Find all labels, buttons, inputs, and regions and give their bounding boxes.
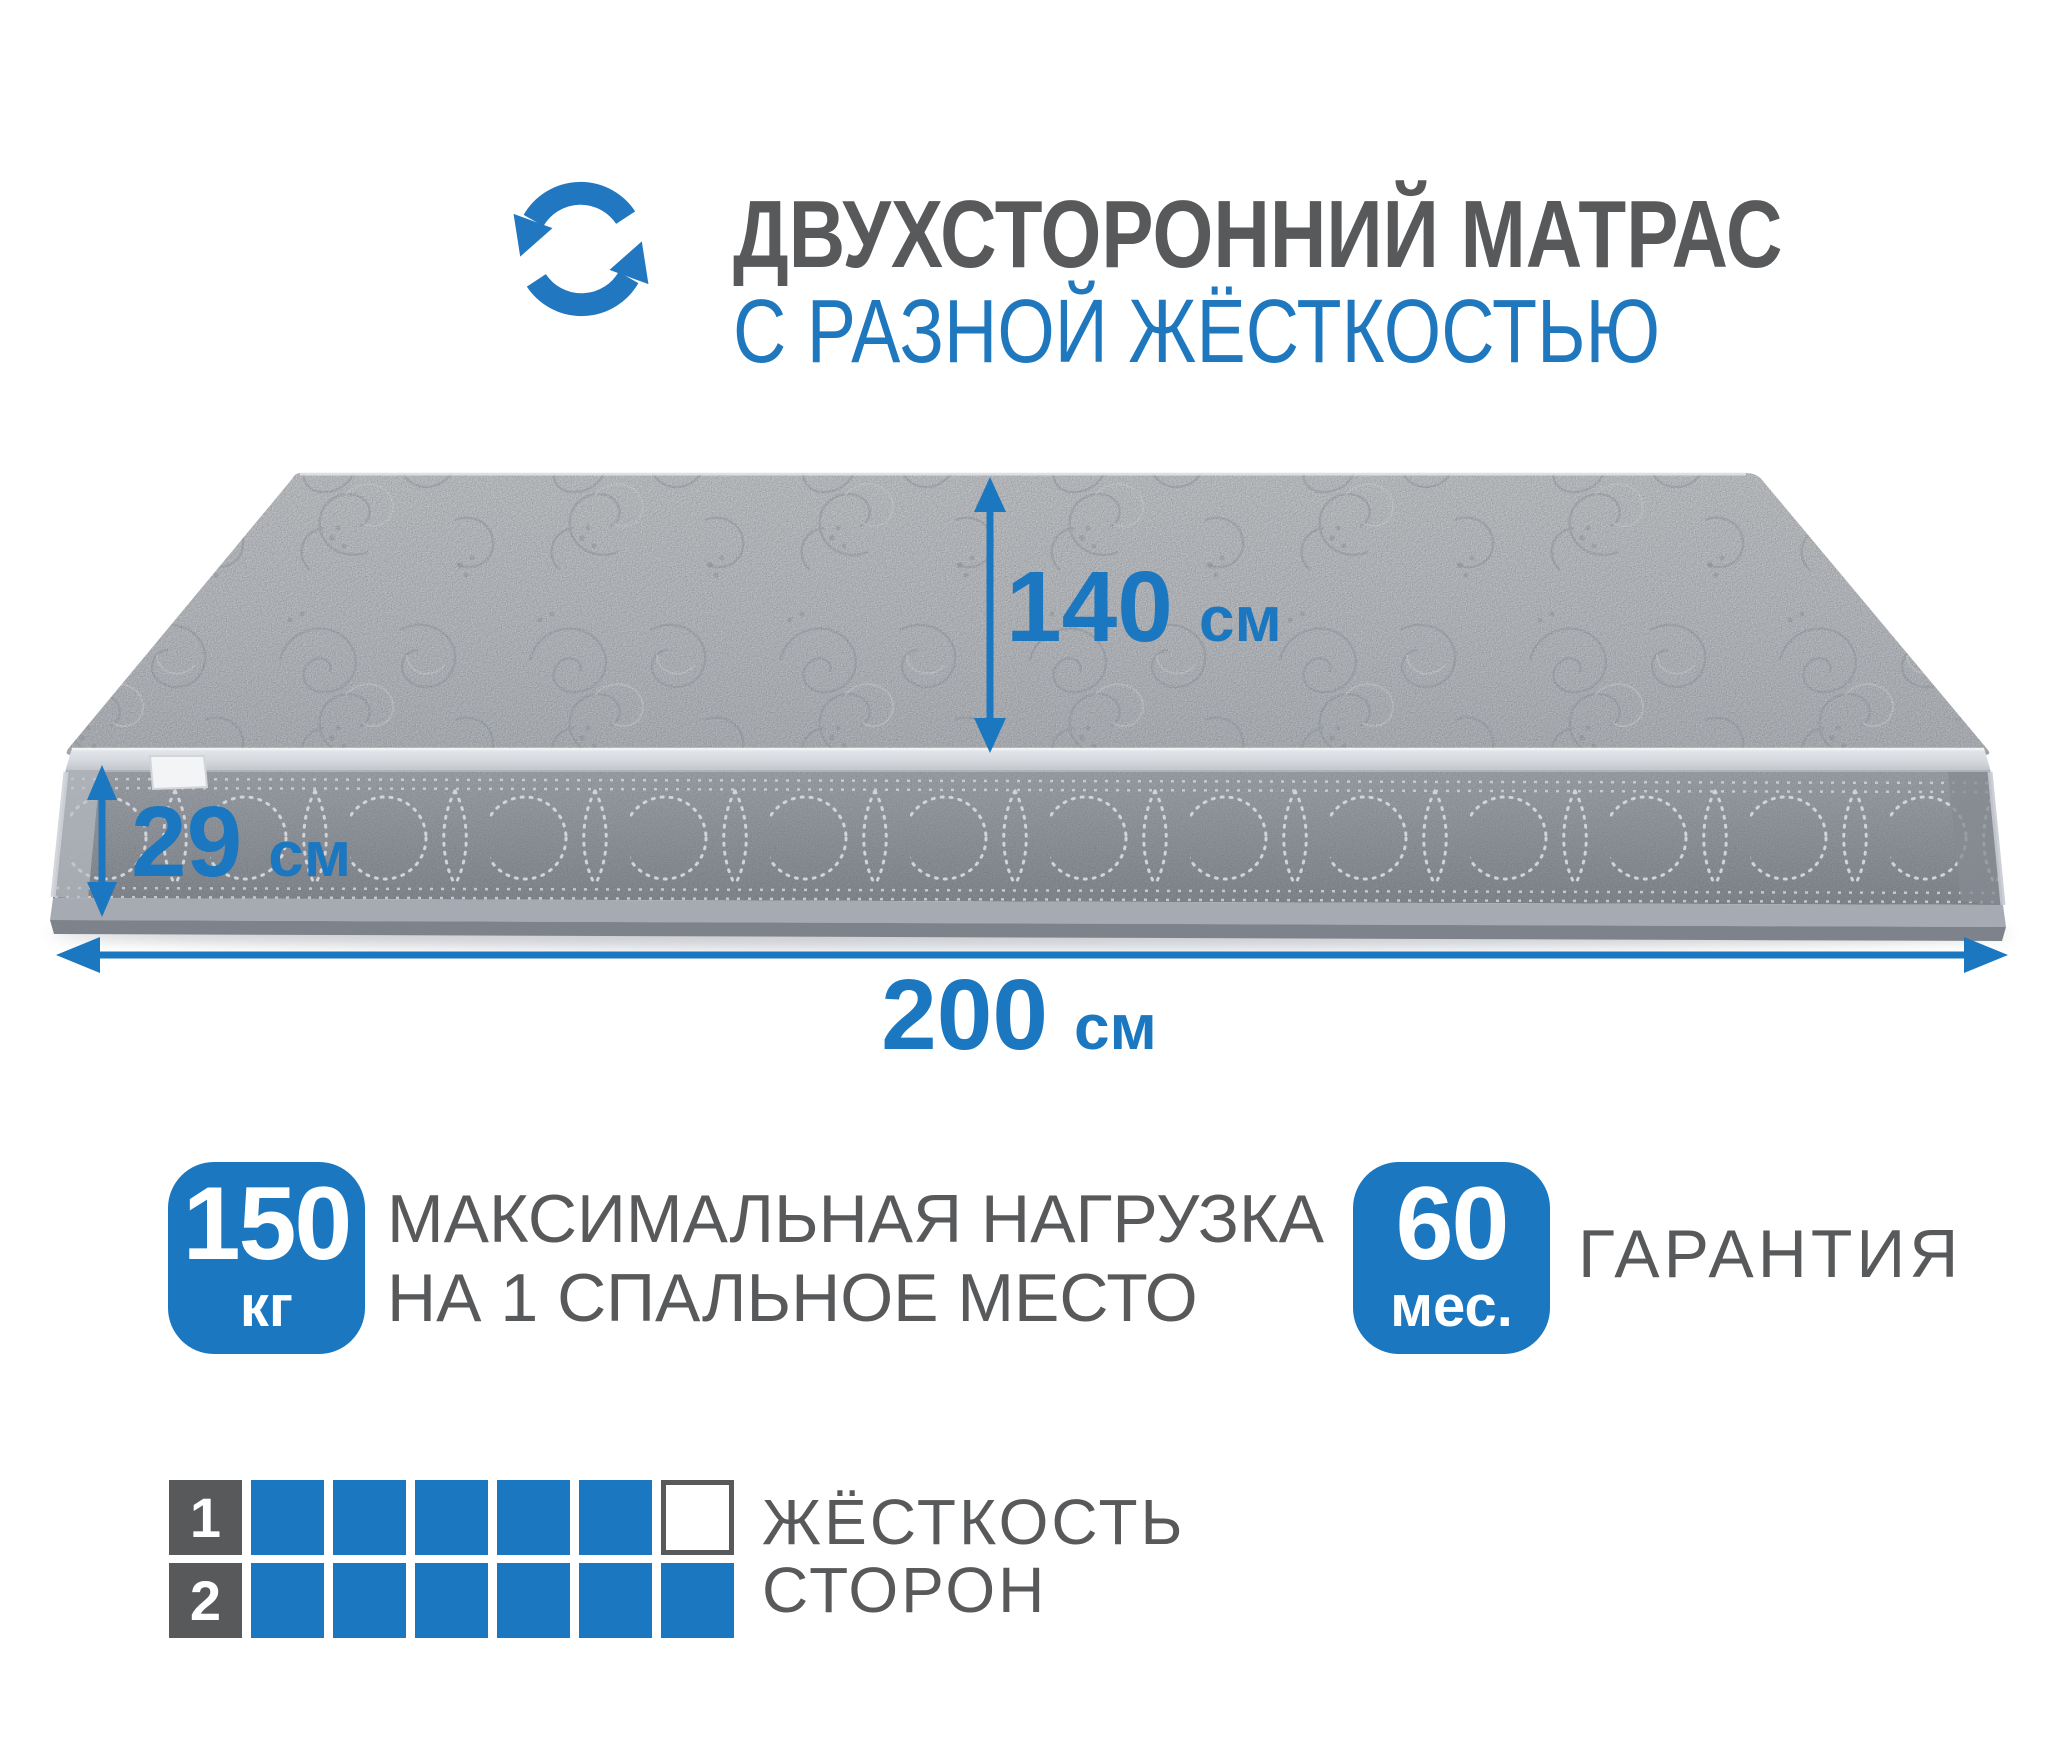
warranty-badge: 60 мес.	[1353, 1162, 1550, 1354]
hardness-caption: ЖЁСТКОСТЬ СТОРОН	[762, 1488, 1186, 1624]
max-load-badge: 150 кг	[168, 1162, 365, 1354]
dimension-height-unit: см	[268, 818, 351, 890]
hardness-cell	[415, 1563, 488, 1638]
hardness-side-number: 1	[169, 1480, 242, 1555]
hardness-cell	[333, 1563, 406, 1638]
dimension-length-label: 200см	[881, 965, 1157, 1065]
hardness-cell	[251, 1563, 324, 1638]
hardness-row: 1	[169, 1480, 734, 1555]
dimension-length-unit: см	[1074, 991, 1157, 1063]
hardness-cell	[661, 1563, 734, 1638]
max-load-value: 150	[183, 1172, 351, 1276]
hardness-cell	[661, 1480, 734, 1555]
warranty-value: 60	[1396, 1172, 1508, 1276]
hardness-cell	[579, 1480, 652, 1555]
max-load-caption-line2: НА 1 СПАЛЬНОЕ МЕСТО	[387, 1259, 1324, 1338]
rotate-arrows-icon	[505, 173, 657, 325]
hardness-cell	[579, 1563, 652, 1638]
mattress-front-piping	[65, 748, 1991, 772]
dimension-depth-value: 140	[1006, 551, 1173, 663]
dimension-height-label: 29см	[131, 792, 351, 892]
mattress-label-tag	[150, 756, 207, 789]
hardness-cell	[415, 1480, 488, 1555]
max-load-unit: кг	[240, 1278, 293, 1336]
infographic-canvas: ДВУХСТОРОННИЙ МАТРАС С РАЗНОЙ ЖЁСТКОСТЬЮ…	[0, 0, 2048, 1757]
hardness-cell	[333, 1480, 406, 1555]
page-subtitle: С РАЗНОЙ ЖЁСТКОСТЬЮ	[733, 285, 1660, 379]
dimension-depth-unit: см	[1199, 583, 1282, 655]
warranty-unit: мес.	[1390, 1278, 1513, 1336]
max-load-caption: МАКСИМАЛЬНАЯ НАГРУЗКА НА 1 СПАЛЬНОЕ МЕСТ…	[387, 1180, 1324, 1338]
hardness-cell	[497, 1480, 570, 1555]
hardness-cell	[251, 1480, 324, 1555]
hardness-caption-line1: ЖЁСТКОСТЬ	[762, 1488, 1186, 1556]
dimension-length-value: 200	[881, 959, 1048, 1071]
hardness-caption-line2: СТОРОН	[762, 1556, 1186, 1624]
hardness-row: 2	[169, 1563, 734, 1638]
hardness-scale: 12	[169, 1480, 734, 1646]
page-title: ДВУХСТОРОННИЙ МАТРАС	[733, 185, 1783, 285]
max-load-caption-line1: МАКСИМАЛЬНАЯ НАГРУЗКА	[387, 1180, 1324, 1259]
dimension-depth-label: 140см	[1006, 557, 1282, 657]
hardness-cell	[497, 1563, 570, 1638]
mattress-bottom-band	[50, 898, 2006, 941]
hardness-side-number: 2	[169, 1563, 242, 1638]
dimension-height-value: 29	[131, 786, 242, 898]
warranty-caption: ГАРАНТИЯ	[1578, 1215, 1962, 1294]
